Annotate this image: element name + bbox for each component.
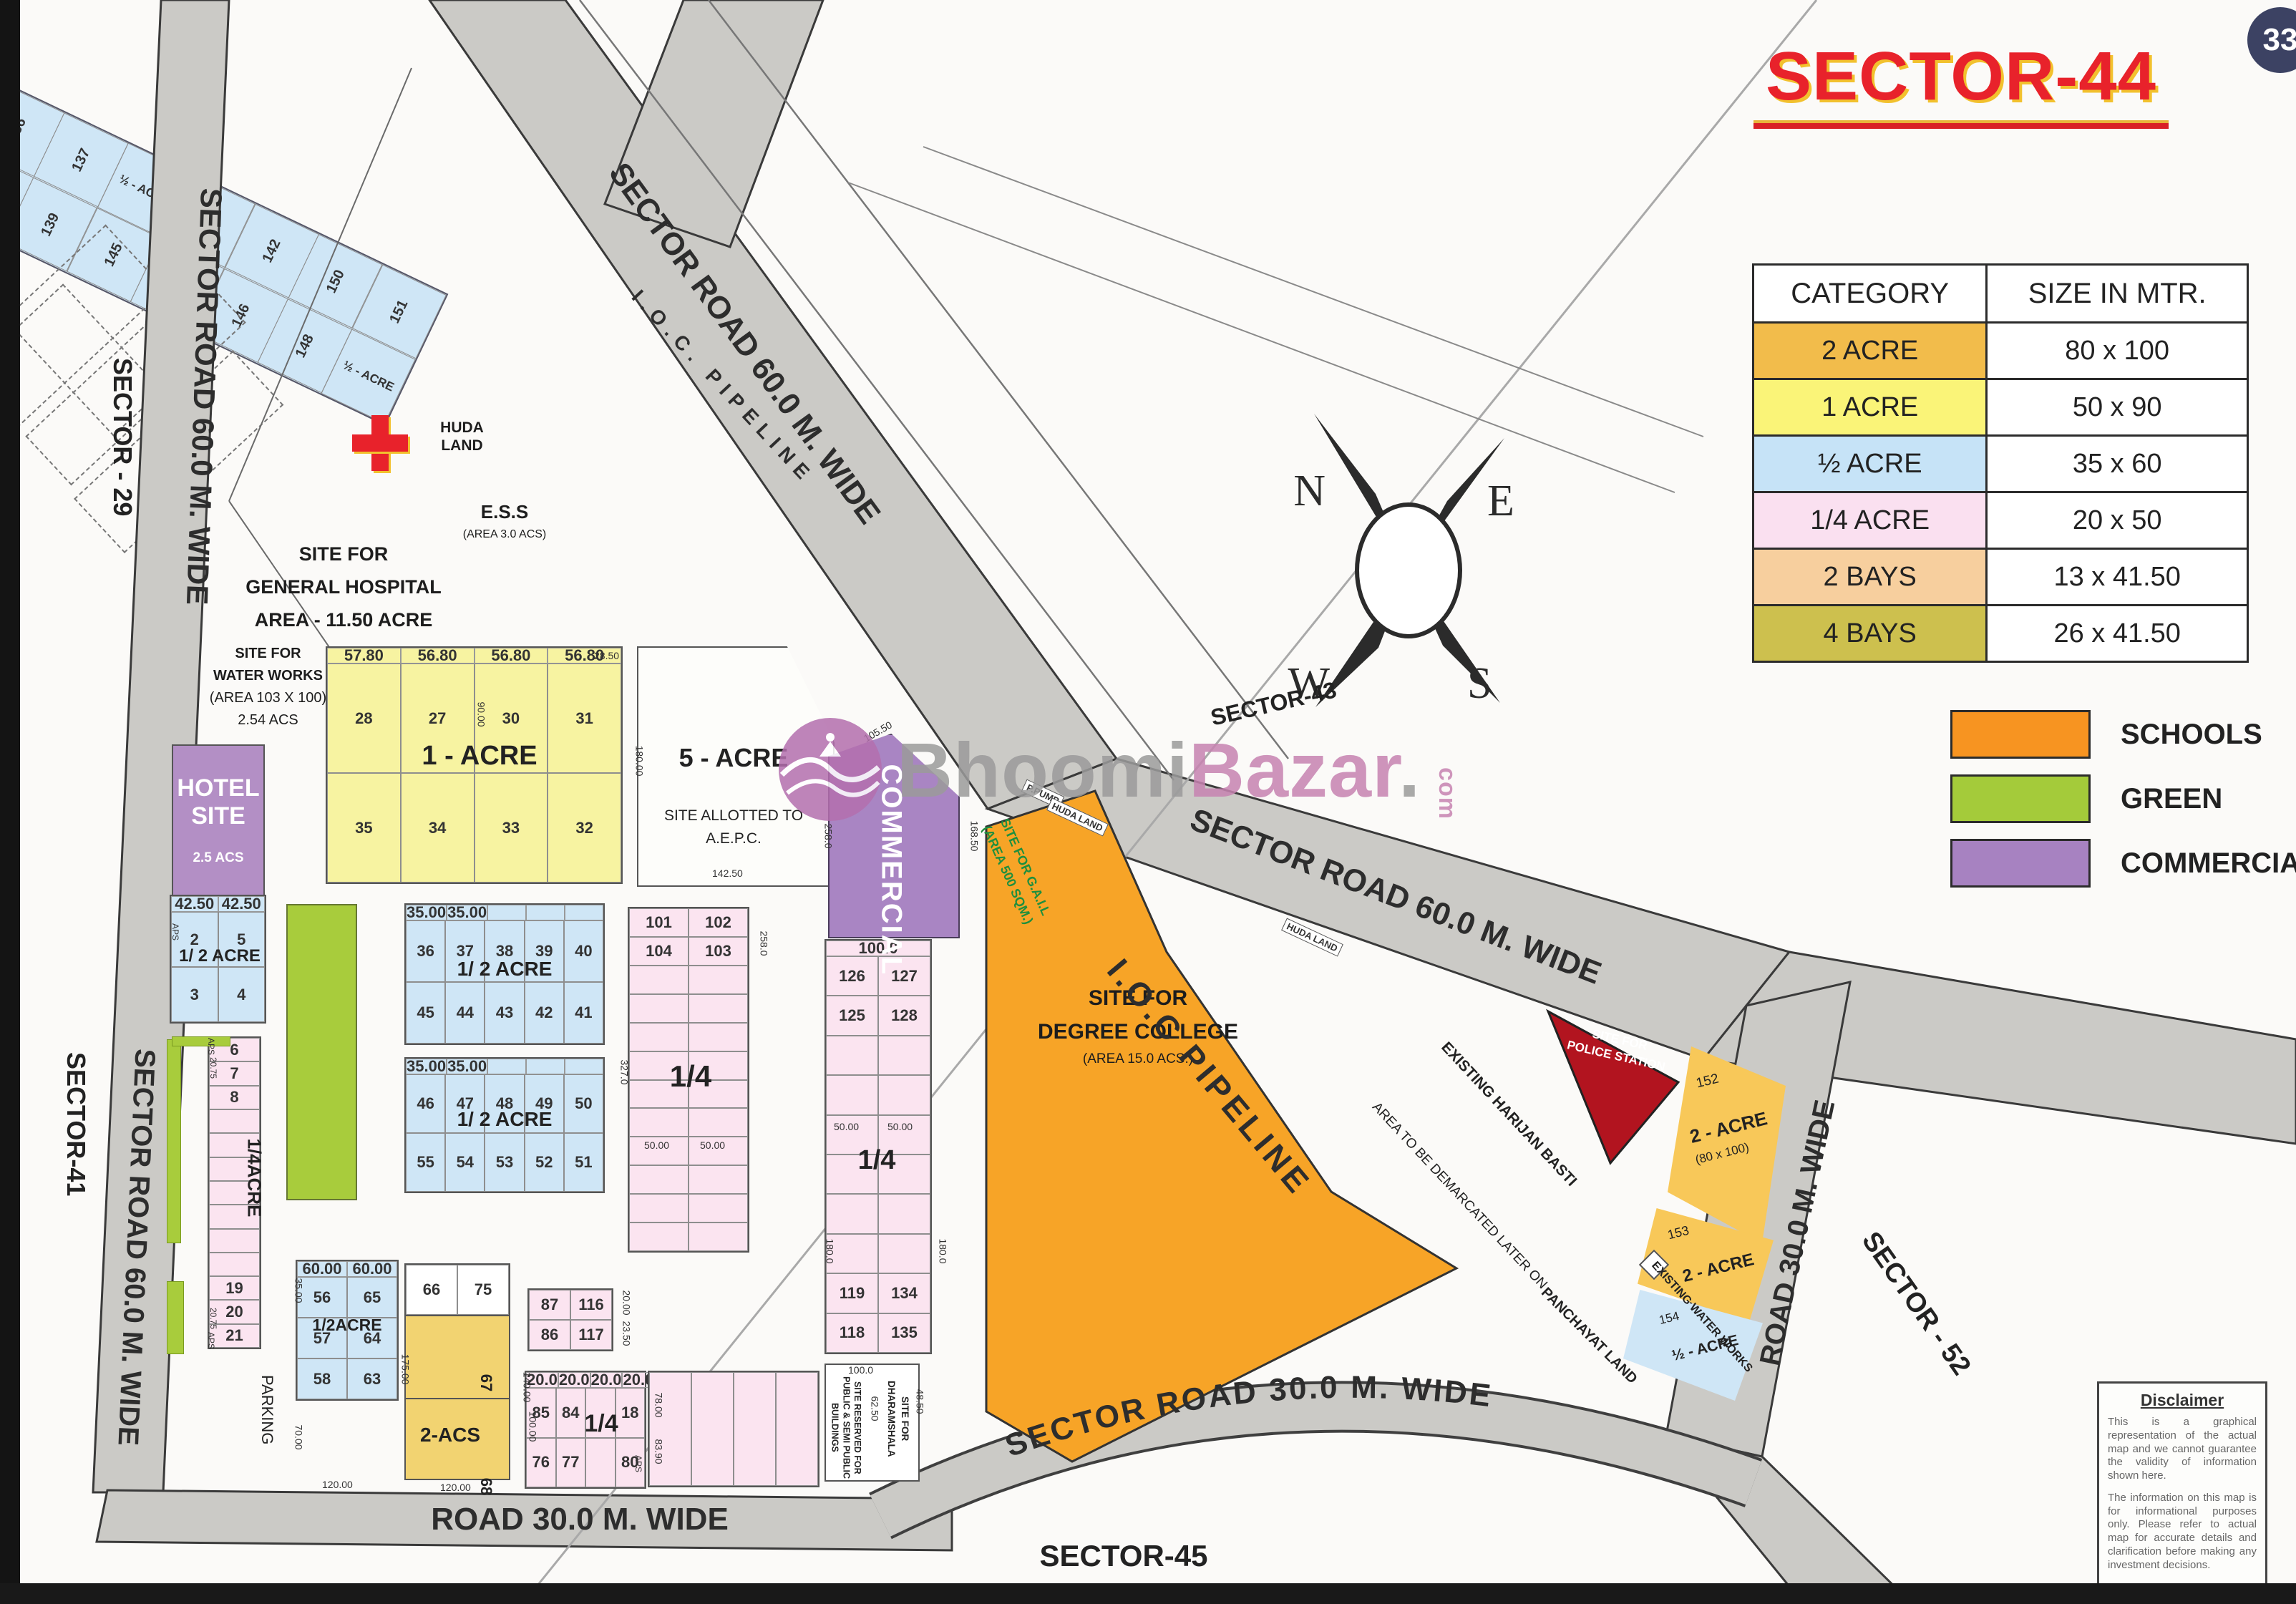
plot-cell [878,1234,930,1273]
plot-cell: 50 x 90 [1988,380,2247,434]
plot-cell [629,1023,689,1051]
half-acre-block-a: 42.5042.50 2534 [170,895,266,1024]
plot-cell: 64 [347,1318,397,1358]
wm-dot: . [1398,726,1421,813]
center-pink-dims: 100.0 [826,940,930,956]
plot-row: 101102 [629,908,748,937]
green-belt-strip [286,904,357,1200]
plot-row: 5764 [297,1318,397,1358]
huda-land-label: HUDA LAND [428,419,496,455]
bhoomibazar-watermark-text: BhoomiBazar.com [897,725,1473,815]
plot-row [629,1080,748,1109]
plot-cell: 103 [689,937,748,966]
plot-cell: 66 [406,1265,457,1315]
wm-part2: Bazar [1189,726,1398,813]
plot-cell: 44 [445,982,485,1044]
plot-cell: 32 [548,773,621,883]
dim-2850: 28.50 [594,650,619,661]
dim-120b: 120.00 [440,1482,471,1493]
plot-row [826,1155,930,1194]
plot-cell: 43 [485,982,524,1044]
dim-258b: 258.0 [823,823,835,848]
dim-2000: 20.00 [621,1290,633,1315]
map-title-text: SECTOR-44 [1753,37,2169,116]
plot-67: 67 [477,1374,495,1391]
plot-cell: 49 [525,1074,564,1133]
dim-2350: 23.50 [621,1321,633,1346]
dim-50c: 50.00 [834,1121,859,1132]
green-curb-c [172,1036,230,1046]
plot-cell: 35.00 [406,905,447,920]
plot-cell: 101 [629,908,689,937]
scan-edge-left [0,0,20,1604]
plot-cell: 126 [826,956,878,996]
plot-cell: COMMERCIAL [2121,847,2296,880]
plot-cell [487,1059,526,1074]
plot-cell: 38 [485,920,524,982]
disclaimer-paragraph-2: The information on this map is for infor… [2108,1492,2257,1573]
dim-90: 90.00 [476,701,487,726]
plot-cell [689,1165,748,1194]
plot-row [826,1234,930,1273]
plot-cell [689,1080,748,1109]
half-d-dims: 60.0060.00 [297,1261,397,1277]
half-acre-block-c: 35.0035.00 46474849505554535251 [404,1057,605,1193]
plot-cell: 100.0 [826,940,930,956]
plot-cell [209,1181,260,1205]
plot-row [629,1194,748,1223]
half-c-grid: 46474849505554535251 [406,1074,603,1192]
dim-142: 142.50 [712,867,743,879]
dim-aps3: APS [170,923,180,940]
plot-cell [585,1388,616,1438]
plot-row: 4647484950 [406,1074,603,1133]
ww-line3: (AREA 103 X 100) [188,687,349,709]
dim-4850: 48.50 [915,1389,926,1414]
plot-row: 125128 [826,996,930,1035]
plot-cell [629,1223,689,1251]
plot-row: 104103 [629,937,748,966]
data-row: ½ ACRE35 x 60 [1754,437,2247,493]
plot-row: 118135 [826,1313,930,1353]
plot-cell [629,1194,689,1223]
plot-cell: 20.0 [590,1372,623,1388]
plot-row: 767780 [526,1438,645,1488]
dim-258a: 258.0 [759,930,770,956]
plot-cell: 51 [564,1133,603,1192]
plot-cell [689,994,748,1023]
dim-70: 70.00 [293,1424,305,1449]
data-row: 2 ACRE80 x 100 [1754,324,2247,380]
quarter-acre-block-center: 100.0 126127125128119134118135 [824,939,932,1354]
plot-cell [487,905,526,920]
plot-cell: 135 [878,1313,930,1353]
plot-cell: 33 [475,773,548,883]
plot-cell [826,1155,878,1194]
plot-cell: 27 [401,664,475,773]
plot-cell: 3 [171,967,218,1022]
plot-row: 858418 [526,1388,645,1438]
plot-cell: 87 [529,1290,570,1320]
data-row: 2 BAYS13 x 41.50 [1754,550,2247,606]
center-pink-grid: 126127125128119134118135 [826,956,930,1353]
plot-cell [734,1372,776,1486]
plot-cell: 52 [525,1133,564,1192]
plot-cell: 60.00 [297,1261,347,1277]
plot-cell [878,1155,930,1194]
plot-row [629,1223,748,1251]
plot-cell: 35.00 [406,1059,447,1074]
plot-cell: 48 [485,1074,524,1133]
plot-cell [629,1108,689,1137]
map-title-underline [1753,120,2169,129]
plots-87-116-block: 8711686117 [527,1288,613,1351]
sector-45-label: SECTOR-45 [1002,1539,1245,1573]
dim-120a: 120.00 [322,1479,353,1490]
plot-cell: 128 [878,996,930,1035]
plot-cell: 50 [564,1074,603,1133]
plot-row: 25 [171,912,265,967]
two-acs-yellow-body: 67 2-ACS 68 [406,1315,509,1479]
plot-cell: 56.80 [401,648,475,664]
plot-cell: 46 [406,1074,445,1133]
plot-cell: 41 [564,982,603,1044]
category-table-rows: 2 ACRE80 x 1001 ACRE50 x 90½ ACRE35 x 60… [1754,324,2247,661]
plot-cell [526,1059,565,1074]
dim-7800: 78.00 [653,1392,665,1417]
legend-swatch [1950,839,2091,888]
plot-cell [629,1051,689,1080]
plot-cell: 102 [689,908,748,937]
sector-41-label: SECTOR-41 [61,1052,91,1296]
plot-cell: 35 [327,773,401,883]
plot-cell: 36 [406,920,445,982]
two-acs-block: 6675 67 2-ACS 68 [404,1263,510,1480]
half-a-grid: 2534 [171,912,265,1022]
plot-cell [629,966,689,994]
one-acre-grid: 2827303135343332 [327,664,621,883]
ess-area-label: (AREA 3.0 ACS) [437,528,573,541]
plot-cell: 47 [445,1074,485,1133]
plot-row: 3637383940 [406,920,603,982]
plot-cell [878,1075,930,1114]
dim-50d: 50.00 [887,1121,913,1132]
green-curb-b [167,1281,184,1354]
data-row: 1 ACRE50 x 90 [1754,380,2247,437]
plot-cell: 31 [548,664,621,773]
plot-row: 28273031 [327,664,621,773]
plot-cell [826,1194,878,1233]
data-row: 1/4 ACRE20 x 50 [1754,493,2247,550]
plot-cell [689,1051,748,1080]
plot-cell: 20 x 50 [1988,493,2247,548]
plot-cell: 18 [616,1388,646,1438]
plot-cell: 19 [209,1276,260,1300]
dim-aps4: APS [633,1455,643,1472]
plot-row: 87116 [529,1290,612,1320]
plot-cell: 8 [209,1086,260,1109]
plots-85-grid: 858418767780 [526,1388,645,1487]
dim-180b: 180.0 [824,1238,836,1263]
plot-row: 4544434241 [406,982,603,1044]
hospital-line2: GENERAL HOSPITAL [215,571,472,604]
plot-cell: 76 [526,1438,556,1488]
plot-row [629,1108,748,1137]
disclaimer-title: Disclaimer [2108,1391,2257,1410]
plot-row [826,1036,930,1075]
plot-cell [826,1036,878,1075]
disclaimer-box: Disclaimer This is a graphical represent… [2097,1381,2267,1590]
plot-cell [209,1133,260,1157]
plot-row [629,1051,748,1080]
hospital-site-label: SITE FOR GENERAL HOSPITAL AREA - 11.50 A… [215,538,472,637]
dim-327: 327.0 [619,1059,631,1084]
plot-cell [565,905,603,920]
bhoomibazar-watermark: BhoomiBazar.com [777,716,1473,823]
plot-row [629,1023,748,1051]
dim-50b: 50.00 [700,1139,725,1151]
half-c-dims: 35.0035.00 [406,1059,603,1074]
plot-cell [629,1080,689,1109]
plot-cell: 35.00 [447,905,487,920]
plot-cell: 57 [297,1318,347,1358]
plot-cell: 42 [525,982,564,1044]
plot-cell [649,1372,691,1486]
plot-cell: ½ ACRE [1754,437,1988,491]
wm-part1: Bhoomi [897,726,1189,813]
plot-cell: 2 BAYS [1754,550,1988,604]
pink-filler-block [648,1371,819,1487]
one-acre-block: 57.8056.8056.8056.80 2827303135343332 [326,646,623,884]
legend-swatch [1950,710,2091,759]
pink-filler-grid [649,1372,818,1486]
plot-cell: 37 [445,920,485,982]
two-acs-top-cells: 6675 [406,1265,509,1315]
dim-180: 180.00 [633,746,645,777]
plot-row [629,966,748,994]
dim-aps2: APS [206,1332,216,1349]
plot-cell [209,1205,260,1228]
hospital-line3: AREA - 11.50 ACRE [215,604,472,637]
plot-cell [209,1109,260,1133]
legend-swatch [1950,774,2091,823]
plot-cell: 2 ACRE [1754,324,1988,378]
ww-line4: 2.54 ACS [188,709,349,731]
data-row: 4 BAYS26 x 41.50 [1754,606,2247,661]
plot-cell: 45 [406,982,445,1044]
plot-cell [691,1372,734,1486]
plot-cell: 63 [347,1358,397,1399]
plot-cell: 118 [826,1313,878,1353]
plot-row: 119134 [826,1273,930,1313]
quarter-strip-cells: 678192021 [209,1038,260,1348]
data-row: COMMERCIAL [1950,841,2296,885]
plot-cell: 1/4 ACRE [1754,493,1988,548]
plot-cell [209,1253,260,1276]
plot-cell: 65 [347,1277,397,1318]
plot-cell: 104 [629,937,689,966]
dim-100: 100.0 [848,1364,873,1376]
hotel-line3: 2.5 ACS [173,850,263,866]
plot-cell: 42.50 [218,896,266,912]
half-acre-block-b: 35.0035.00 36373839404544434241 [404,903,605,1045]
dim-2075b: 20.75 [208,1308,218,1329]
plot-row: 35343332 [327,773,621,883]
huda-line1: HUDA [428,419,496,437]
category-header-cell: CATEGORY [1754,266,1988,321]
plot-cell [629,994,689,1023]
plot-cell: 134 [878,1273,930,1313]
dim-aps1: APS [206,1038,216,1055]
plot-cell: 127 [878,956,930,996]
color-legend: SCHOOLSGREENCOMMERCIAL [1950,712,2296,905]
plot-cell: 56.80 [475,648,548,664]
plot-cell: 77 [556,1438,586,1488]
plot-row: 5863 [297,1358,397,1399]
two-acs-label: 2-ACS [420,1424,480,1447]
plot-cell: 84 [556,1388,586,1438]
plot-cell: 5 [218,912,266,967]
dharamshala-block [824,1364,920,1482]
plot-cell: GREEN [2121,783,2296,815]
plot-cell: 58 [297,1358,347,1399]
plot-cell: 86 [529,1320,570,1350]
plot-row: 5554535251 [406,1133,603,1192]
plot-cell: 42.50 [171,896,218,912]
green-curb-a [167,1039,181,1243]
data-row: SCHOOLS [1950,712,2296,757]
hotel-line1: HOTEL [173,774,263,802]
plot-row [826,1075,930,1114]
plot-cell: 4 [218,967,266,1022]
quarter-acre-strip: 678192021 [208,1036,261,1349]
scan-edge-bottom [0,1583,2296,1604]
size-header-cell: SIZE IN MTR. [1988,266,2247,321]
road-label-bottom-30m: ROAD 30.0 M. WIDE [415,1502,744,1537]
plot-cell: 35 x 60 [1988,437,2247,491]
hotel-site-block: HOTEL SITE 2.5 ACS [172,744,265,903]
quarter-acre-block-main: 101102104103 [628,907,749,1253]
plot-cell [689,1108,748,1137]
plot-cell [776,1372,818,1486]
wm-part3: com [1433,767,1461,820]
category-size-table: CATEGORY SIZE IN MTR. 2 ACRE80 x 1001 AC… [1752,263,2249,663]
plot-cell: 1 ACRE [1754,380,1988,434]
plot-cell: 13 x 41.50 [1988,550,2247,604]
dim-6250: 62.50 [870,1396,881,1421]
plot-cell [689,1223,748,1251]
plot-cell: 117 [570,1320,612,1350]
plot-cell [689,966,748,994]
plot-cell [689,1023,748,1051]
plot-cell [826,1075,878,1114]
plot-cell [526,905,565,920]
one-acre-dims: 57.8056.8056.8056.80 [327,648,621,664]
plot-cell: SCHOOLS [2121,719,2296,751]
map-title: SECTOR-44 [1753,37,2169,129]
quarter-main-grid: 101102104103 [629,908,748,1251]
plot-cell [689,1194,748,1223]
plot-row: 34 [171,967,265,1022]
hospital-line1: SITE FOR [215,538,472,571]
plot-cell: 40 [564,920,603,982]
plot-row: 86117 [529,1320,612,1350]
bhoomibazar-logo-icon [777,716,884,823]
plot-cell: 26 x 41.50 [1988,606,2247,661]
dim-180c: 180.0 [938,1238,949,1263]
plot-cell [629,1165,689,1194]
plot-row: 126127 [826,956,930,996]
plot-cell: 4 BAYS [1754,606,1988,661]
plot-cell [878,1194,930,1233]
data-row: GREEN [1950,777,2296,821]
dim-175: 175.00 [399,1354,411,1385]
plot-cell: 116 [570,1290,612,1320]
huda-line2: LAND [428,437,496,455]
half-acre-block-d: 60.0060.00 566557645863 [296,1260,399,1401]
dim-8390: 83.90 [653,1439,665,1464]
plot-cell: 119 [826,1273,878,1313]
dim-2075a: 20.75 [208,1057,218,1079]
dim-100b: 100.00 [527,1411,538,1442]
plot-cell [585,1438,616,1488]
plot-cell: 60.00 [347,1261,397,1277]
plot-row [649,1372,818,1486]
dim-140: 140.00 [521,1372,532,1403]
plots-87-grid: 8711686117 [529,1290,612,1350]
dim-50a: 50.00 [644,1139,669,1151]
plot-cell: 35.00 [447,1059,487,1074]
plot-cell: 54 [445,1133,485,1192]
hospital-cross-icon [352,415,408,471]
half-b-grid: 36373839404544434241 [406,920,603,1044]
sector-44-map-page: N E W S SECTOR ROAD 30.0 M. WIDE SECTOR … [0,0,2296,1604]
plot-cell: 39 [525,920,564,982]
dim-35: 35.00 [293,1278,305,1303]
plot-cell: 34 [401,773,475,883]
plot-cell [565,1059,603,1074]
plot-cell: 75 [457,1265,509,1315]
plot-cell [209,1229,260,1253]
half-a-dims: 42.5042.50 [171,896,265,912]
category-table-header: CATEGORY SIZE IN MTR. [1754,266,2247,324]
plot-cell: 53 [485,1133,524,1192]
disclaimer-paragraph-1: This is a graphical representation of th… [2108,1416,2257,1483]
plot-row: 5665 [297,1277,397,1318]
plot-row [629,994,748,1023]
plot-cell: 55 [406,1133,445,1192]
plot-cell: 20.0 [558,1372,590,1388]
plot-row [826,1194,930,1233]
plot-cell: 80 x 100 [1988,324,2247,378]
plot-cell [878,1036,930,1075]
half-d-grid: 566557645863 [297,1277,397,1399]
plot-row [629,1165,748,1194]
plot-cell [209,1157,260,1181]
plot-cell: 125 [826,996,878,1035]
sector-29-label: SECTOR - 29 [107,358,137,630]
plots-85-84-block: 20.020.020.020.0 858418767780 [525,1371,646,1489]
half-b-dims: 35.0035.00 [406,905,603,920]
ess-label: E.S.S [458,501,551,523]
hotel-line2: SITE [173,802,263,830]
plots-85-dims: 20.020.020.020.0 [526,1372,645,1388]
